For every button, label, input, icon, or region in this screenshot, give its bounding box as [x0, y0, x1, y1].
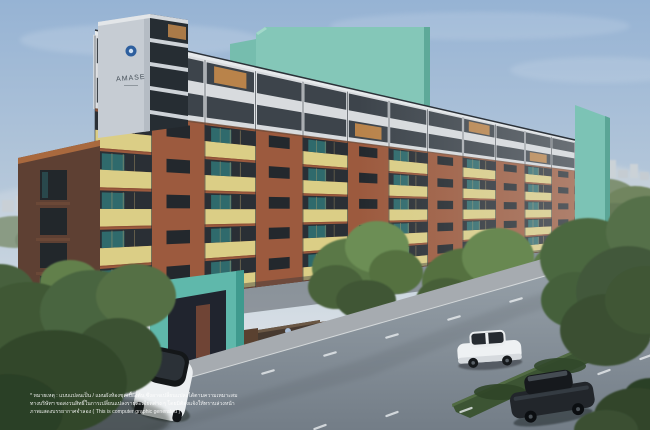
wing-window-glass [42, 172, 48, 198]
tower-sign-tagline [124, 85, 138, 86]
distant-building [630, 164, 638, 178]
disclaimer-line-1: * หมายเหตุ : แบบแปลนเป็น / แผนผังห้องชุด… [30, 391, 238, 399]
distant-building [640, 172, 649, 180]
amase-logo-icon-center [129, 49, 133, 53]
rooftop-structure-shade [424, 27, 430, 110]
architectural-rendering: AMASE [0, 0, 650, 430]
rendering-canvas: AMASE [0, 0, 650, 430]
distant-building [609, 160, 616, 178]
disclaimer-line-2: ทางบริษัทฯ ขอสงวนสิทธิ์ในการเปลี่ยนแปลงร… [30, 399, 235, 407]
wing-window [40, 208, 67, 235]
entrance-interior-wall [196, 304, 210, 358]
disclaimer-line-3: ภาพแสดงบรรยากาศจำลอง ( This is computer … [30, 408, 180, 415]
distant-building [618, 170, 628, 178]
wing-slab-line [36, 238, 70, 241]
wing-slab-line [36, 202, 70, 205]
branding-tower: AMASE [98, 14, 188, 138]
tree-canopy [96, 264, 176, 328]
distant-house [2, 200, 14, 212]
